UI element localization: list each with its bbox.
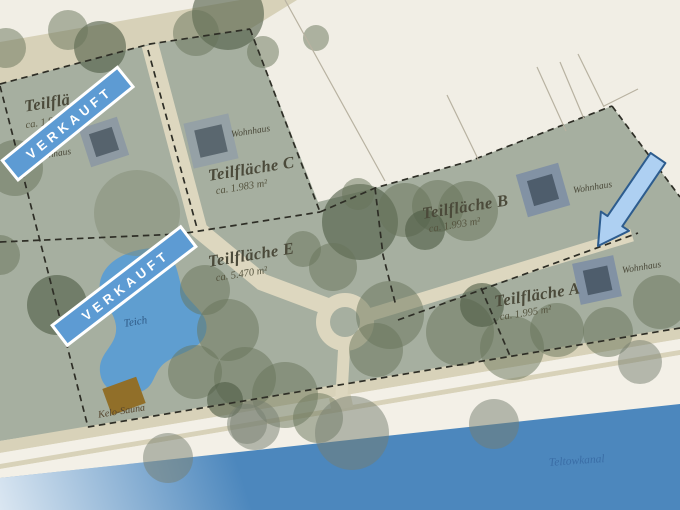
tree	[618, 340, 662, 384]
tree	[349, 323, 403, 377]
tree	[48, 10, 88, 50]
site-plan-image: Teilflä ca. 1.9 Wohnhaus Teilfläche C ca…	[0, 0, 680, 510]
tree	[303, 25, 329, 51]
tree	[173, 10, 219, 56]
site-plan-svg: Teilflä ca. 1.9 Wohnhaus Teilfläche C ca…	[0, 0, 680, 510]
tree	[342, 178, 374, 210]
house-roof	[583, 266, 613, 296]
tree	[315, 396, 389, 470]
tree	[469, 399, 519, 449]
tree	[143, 433, 193, 483]
tree	[227, 404, 267, 444]
